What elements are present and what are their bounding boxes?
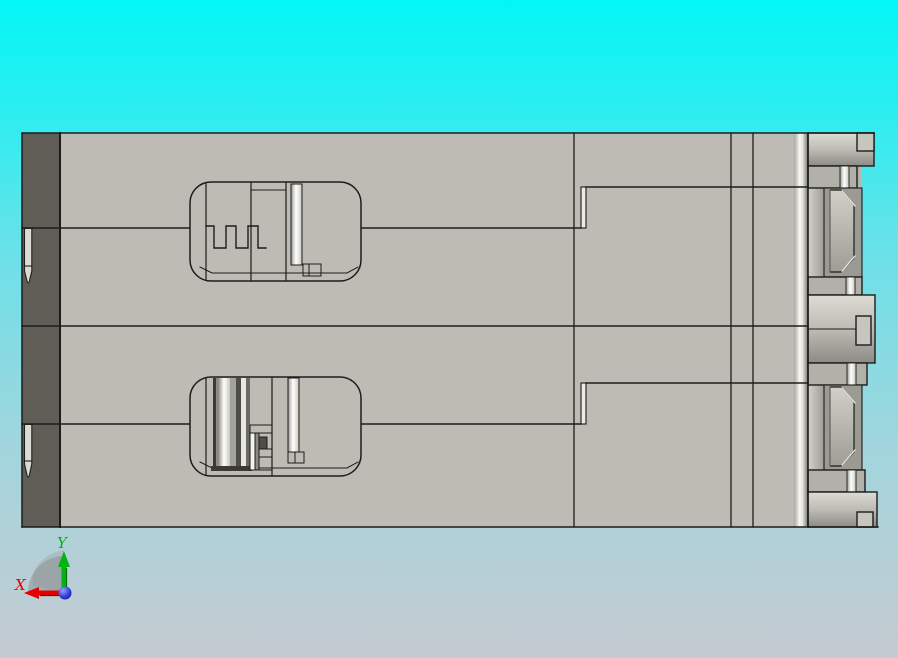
terminal-pin-2 xyxy=(25,425,32,478)
axis-y-label: Y xyxy=(57,534,69,552)
terminal-pin-1 xyxy=(25,229,32,283)
sketch-plane-shadow-soft xyxy=(33,550,64,592)
cap-mid-tab xyxy=(856,316,871,345)
cavity-slot-2 xyxy=(190,377,361,476)
cad-viewport: X Y xyxy=(0,0,898,658)
latch-bar-1 xyxy=(840,166,849,188)
axis-origin xyxy=(59,587,72,600)
cap-band-4 xyxy=(808,470,865,492)
latch-bar-4 xyxy=(847,470,856,492)
cap-top-tab xyxy=(857,133,874,151)
cad-canvas: X Y xyxy=(0,0,898,658)
right-cap xyxy=(808,133,877,527)
cavity-slot-1 xyxy=(190,182,361,281)
cap-recess-1 xyxy=(824,188,862,277)
contact-bar-2 xyxy=(288,378,299,452)
cap-bottom-tab xyxy=(857,512,873,527)
row1-step xyxy=(581,187,586,228)
cylindrical-highlight xyxy=(794,133,808,527)
cap-band-1 xyxy=(808,166,857,188)
latch-bar-3 xyxy=(847,363,856,385)
contact-bar-1 xyxy=(291,184,302,265)
latch-bar-2 xyxy=(846,277,855,295)
cap-band-3 xyxy=(808,363,867,385)
connector-part[interactable] xyxy=(22,133,878,527)
part-body xyxy=(60,133,794,527)
axis-x-label: X xyxy=(14,576,27,594)
cap-recess-2 xyxy=(824,385,862,470)
blade-stack xyxy=(211,378,252,471)
row3-step xyxy=(581,383,586,424)
axis-triad: X Y xyxy=(14,534,72,600)
